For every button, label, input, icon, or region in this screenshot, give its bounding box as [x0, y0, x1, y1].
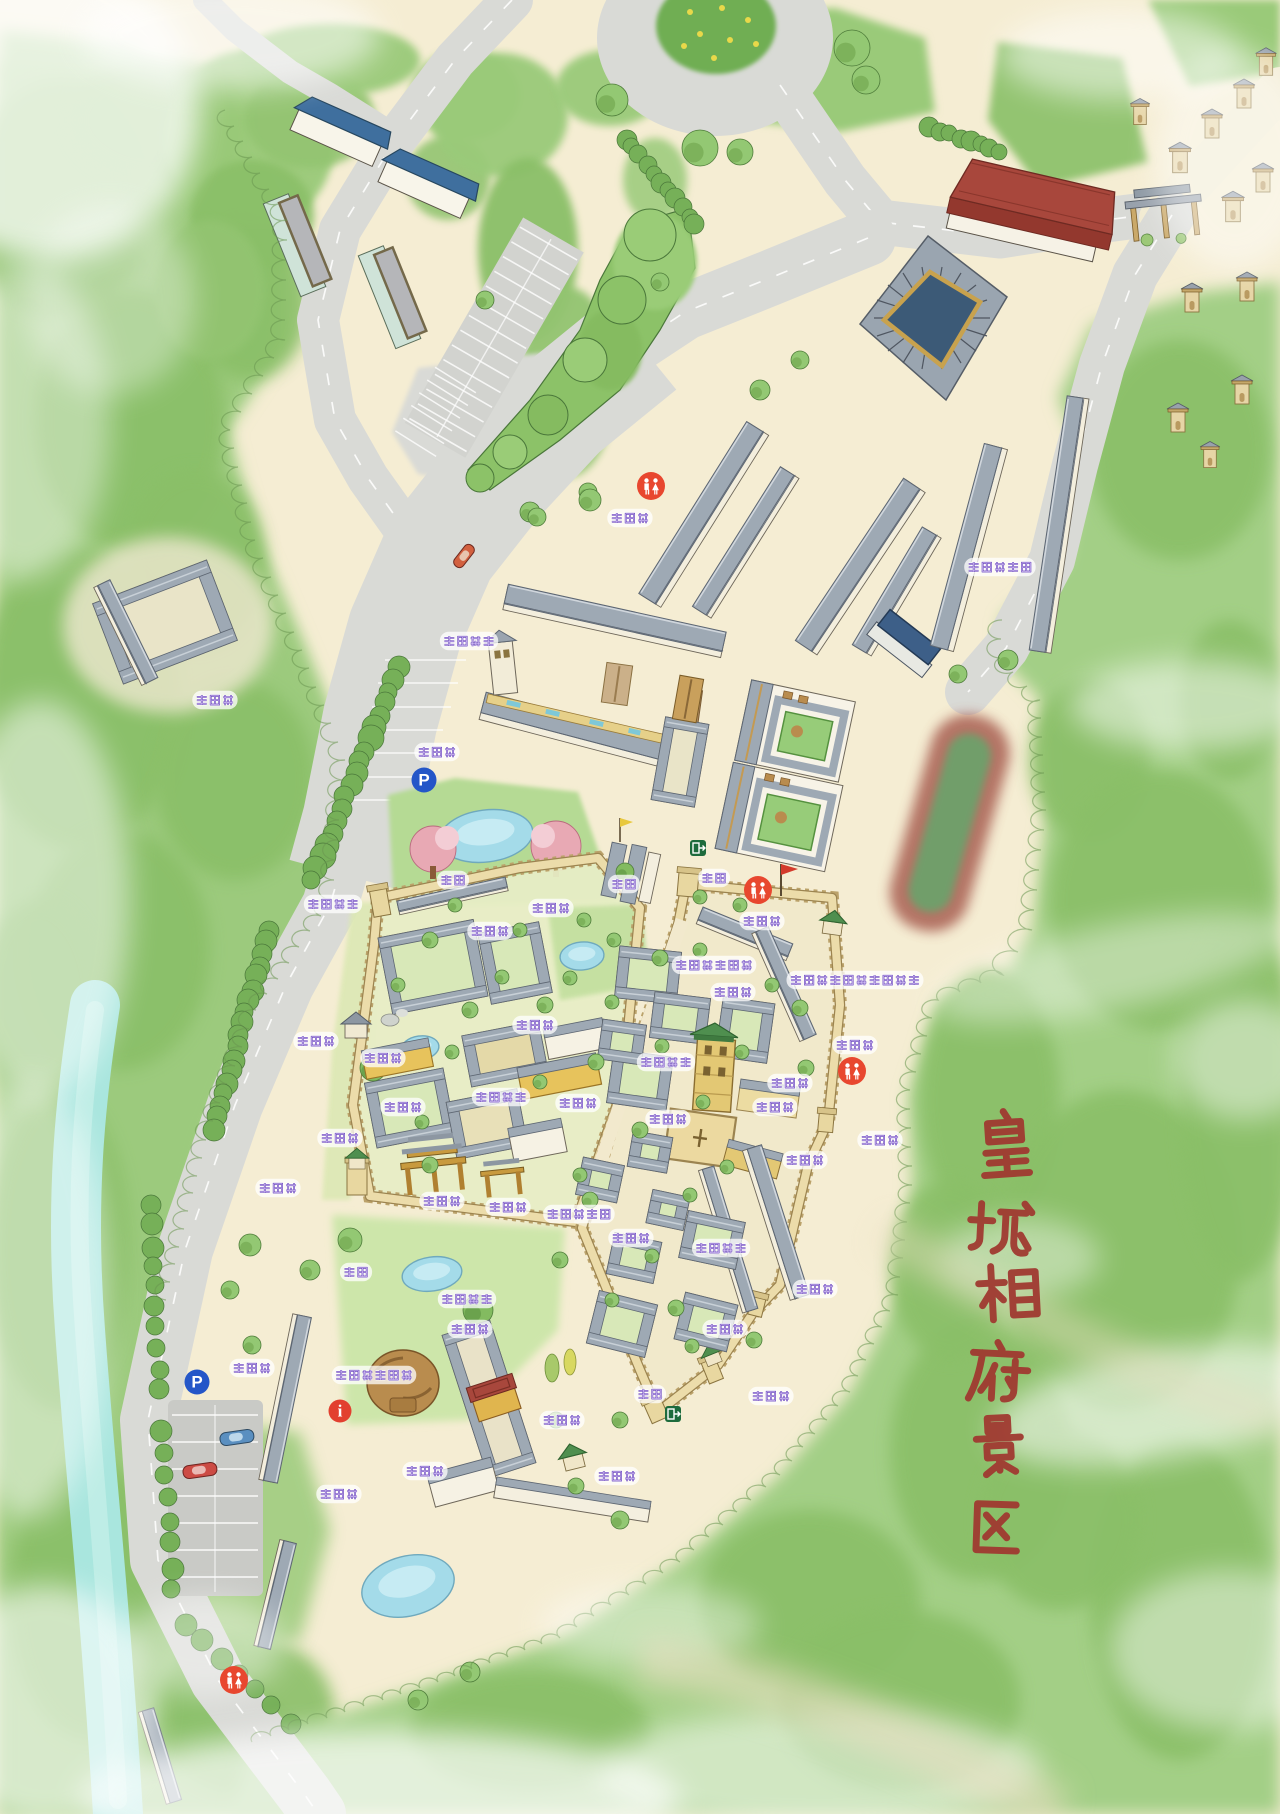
svg-text:i: i: [338, 1402, 343, 1421]
svg-text:P: P: [418, 771, 429, 790]
svg-text:P: P: [191, 1373, 202, 1392]
